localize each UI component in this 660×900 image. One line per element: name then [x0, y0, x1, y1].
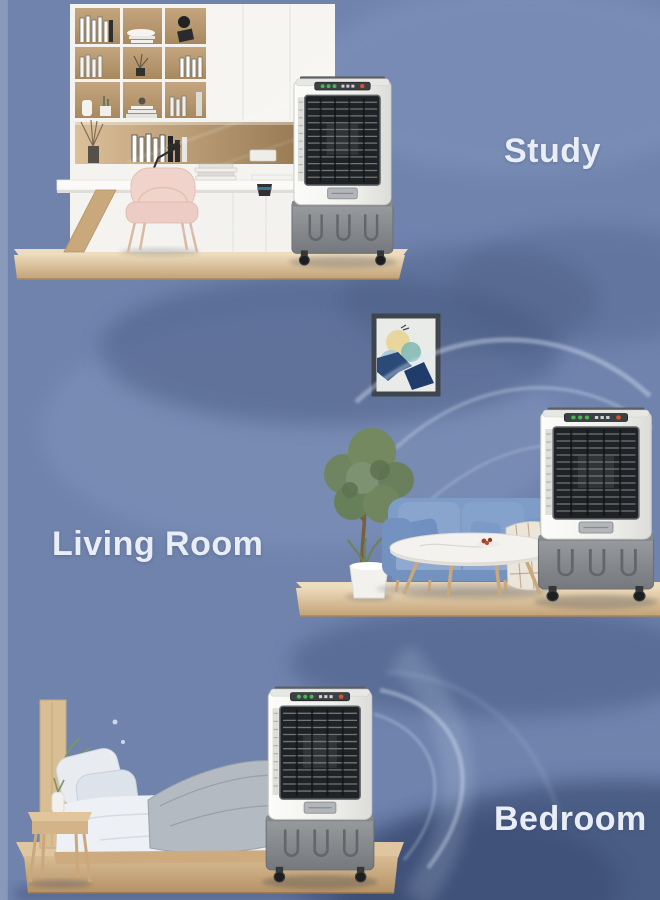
room-label-bedroom: Bedroom	[494, 800, 647, 839]
air-cooler-study	[292, 76, 393, 265]
water-droplets	[109, 720, 125, 755]
air-cooler-living-room	[539, 408, 654, 602]
vase	[52, 792, 64, 814]
room-label-living-room: Living Room	[52, 525, 263, 564]
wall-left-edge	[0, 0, 8, 900]
product-lifestyle-image: Study Living Room Bedroom	[0, 0, 660, 900]
air-cooler-bedroom	[266, 687, 374, 882]
bedroom-bed	[40, 700, 294, 864]
room-label-study: Study	[504, 132, 601, 171]
book-stack	[195, 164, 237, 180]
